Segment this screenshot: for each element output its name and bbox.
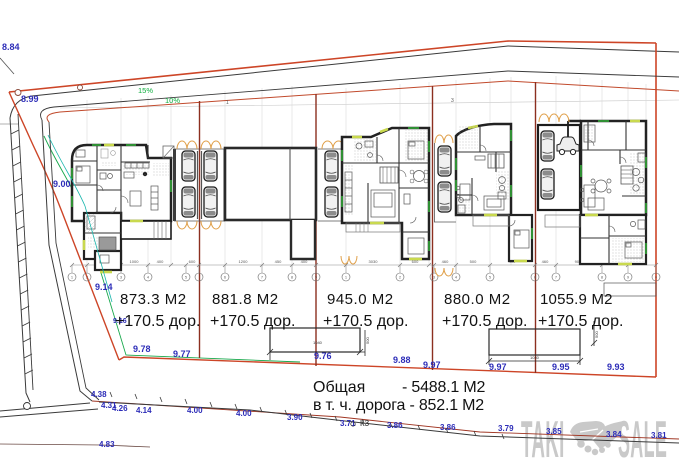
svg-text:3.86: 3.86 (440, 423, 456, 432)
svg-text:3.79: 3.79 (498, 424, 514, 433)
svg-text:К3: К3 (360, 419, 370, 428)
svg-text:945.0 М2: 945.0 М2 (327, 291, 394, 308)
svg-text:500: 500 (594, 331, 599, 338)
svg-text:TAKI: TAKI (521, 412, 565, 469)
svg-text:1200: 1200 (239, 259, 249, 264)
svg-text:880.0 М2: 880.0 М2 (444, 291, 511, 308)
svg-text:4.26: 4.26 (112, 404, 128, 413)
svg-text:500: 500 (365, 337, 370, 344)
svg-text:600: 600 (189, 259, 196, 264)
svg-text:+170.5 дор.: +170.5 дор. (538, 313, 623, 330)
svg-text:3: 3 (451, 98, 454, 104)
svg-text:3.71: 3.71 (340, 419, 356, 428)
svg-text:15%: 15% (138, 86, 153, 95)
svg-text:3.86: 3.86 (387, 421, 403, 430)
svg-text:400: 400 (157, 259, 164, 264)
svg-text:4.14: 4.14 (136, 406, 152, 415)
svg-text:4.00: 4.00 (236, 409, 252, 418)
svg-text:в т. ч. дорога - 852.1 М2: в т. ч. дорога - 852.1 М2 (313, 397, 484, 414)
svg-text:4.38: 4.38 (91, 390, 107, 399)
svg-text:881.8 М2: 881.8 М2 (212, 291, 279, 308)
svg-text:1040: 1040 (530, 355, 540, 360)
svg-text:1: 1 (226, 100, 229, 106)
svg-text:1055.9 М2: 1055.9 М2 (540, 291, 613, 308)
svg-text:460: 460 (542, 259, 549, 264)
svg-text:500: 500 (470, 259, 477, 264)
svg-text:4.00: 4.00 (187, 406, 203, 415)
svg-text:873.3 М2: 873.3 М2 (120, 291, 187, 308)
svg-text:9.78: 9.78 (133, 344, 151, 354)
svg-text:450: 450 (275, 259, 282, 264)
svg-text:9.97: 9.97 (423, 360, 441, 370)
svg-text:9.76: 9.76 (314, 351, 332, 361)
svg-text:3.81: 3.81 (651, 431, 667, 440)
svg-text:1040: 1040 (313, 340, 323, 345)
svg-text:- 5488.1 М2: - 5488.1 М2 (402, 379, 485, 396)
svg-text:9.93: 9.93 (607, 362, 625, 372)
svg-text:1000: 1000 (130, 259, 140, 264)
svg-text:Общая: Общая (313, 379, 365, 396)
svg-text:10%: 10% (165, 96, 180, 105)
svg-text:4.83: 4.83 (99, 440, 115, 449)
svg-text:+170.5 дор.: +170.5 дор. (323, 313, 408, 330)
svg-text:8.84: 8.84 (2, 42, 20, 52)
svg-text:8.99: 8.99 (21, 94, 39, 104)
svg-text:3.90: 3.90 (287, 413, 303, 422)
svg-text:SALE: SALE (618, 412, 667, 469)
svg-text:+170.5 дор.: +170.5 дор. (210, 313, 295, 330)
svg-text:3.84: 3.84 (606, 430, 622, 439)
svg-text:9.97: 9.97 (489, 362, 507, 372)
svg-text:9.88: 9.88 (393, 355, 411, 365)
svg-text:+170.5 дор.: +170.5 дор. (115, 313, 200, 330)
svg-text:9.14: 9.14 (95, 282, 113, 292)
svg-text:9.00: 9.00 (53, 179, 71, 189)
svg-text:3.85: 3.85 (546, 427, 562, 436)
svg-text:460: 460 (442, 259, 449, 264)
svg-text:+170.5 дор.: +170.5 дор. (442, 313, 527, 330)
svg-text:9.77: 9.77 (173, 349, 191, 359)
svg-text:3030: 3030 (369, 259, 379, 264)
svg-text:9.95: 9.95 (552, 362, 570, 372)
